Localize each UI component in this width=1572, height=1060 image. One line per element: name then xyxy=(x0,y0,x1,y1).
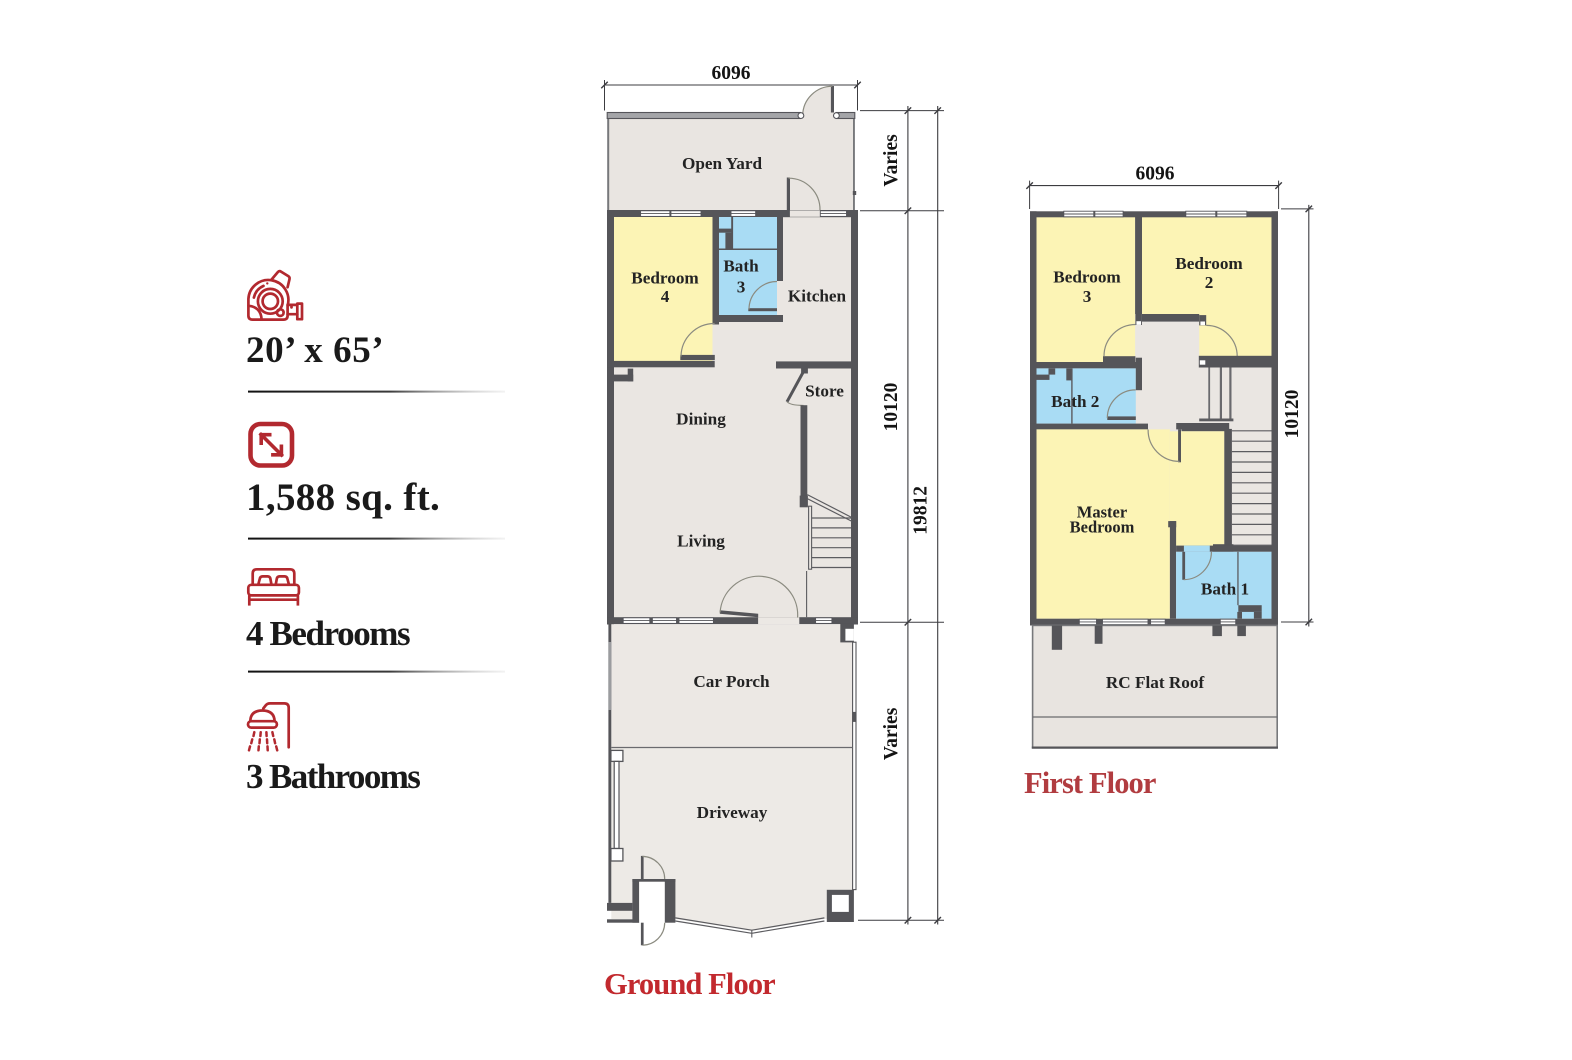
svg-text:Bath 2: Bath 2 xyxy=(1051,392,1099,411)
svg-text:Bedroom: Bedroom xyxy=(1175,254,1243,273)
svg-text:Open Yard: Open Yard xyxy=(682,154,763,173)
svg-text:6096: 6096 xyxy=(712,63,751,84)
svg-text:4: 4 xyxy=(661,287,670,306)
svg-text:Ground Floor: Ground Floor xyxy=(604,967,775,1001)
svg-text:RC Flat Roof: RC Flat Roof xyxy=(1106,673,1205,692)
svg-text:Bath: Bath xyxy=(723,257,759,276)
svg-text:3: 3 xyxy=(737,278,746,297)
svg-text:19812: 19812 xyxy=(911,486,932,535)
svg-text:Store: Store xyxy=(805,382,844,401)
svg-text:Varies: Varies xyxy=(881,134,902,187)
svg-text:First Floor: First Floor xyxy=(1024,766,1156,800)
svg-text:10120: 10120 xyxy=(1282,390,1303,439)
svg-text:2: 2 xyxy=(1205,273,1214,292)
svg-text:Varies: Varies xyxy=(881,707,902,760)
svg-text:Kitchen: Kitchen xyxy=(788,287,847,306)
svg-text:Bath 1: Bath 1 xyxy=(1201,580,1249,599)
svg-text:Bedroom: Bedroom xyxy=(1070,518,1135,537)
svg-text:Car Porch: Car Porch xyxy=(693,672,770,691)
svg-text:Bedroom: Bedroom xyxy=(1053,268,1121,287)
svg-text:Bedroom: Bedroom xyxy=(631,269,699,288)
svg-text:Dining: Dining xyxy=(676,410,726,429)
svg-text:10120: 10120 xyxy=(881,383,902,432)
svg-text:1,588 sq. ft.: 1,588 sq. ft. xyxy=(246,476,440,519)
svg-text:3: 3 xyxy=(1083,287,1092,306)
svg-text:4 Bedrooms: 4 Bedrooms xyxy=(246,614,410,653)
svg-text:Living: Living xyxy=(677,532,725,551)
svg-text:20’ x 65’: 20’ x 65’ xyxy=(246,330,384,371)
svg-text:Driveway: Driveway xyxy=(697,803,768,822)
svg-text:6096: 6096 xyxy=(1136,164,1175,185)
svg-text:3 Bathrooms: 3 Bathrooms xyxy=(246,757,420,796)
